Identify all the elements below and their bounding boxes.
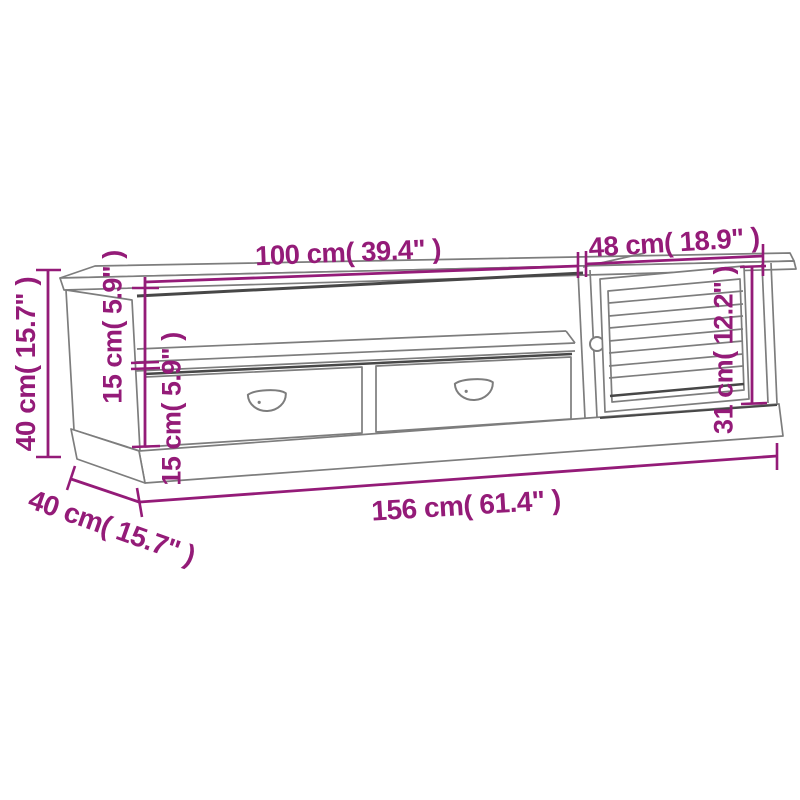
shelf-right-seam xyxy=(566,331,575,343)
dim-label-15cm-upper: 15 cm( 5.9" ) xyxy=(97,250,127,403)
diagram-canvas: 100 cm( 39.4" ) 48 cm( 18.9" ) 40 cm( 15… xyxy=(0,0,800,800)
right-post-outer-edge xyxy=(771,263,777,404)
dim-label-15cm-lower: 15 cm( 5.9" ) xyxy=(156,332,186,485)
dim-label-40cm-depth: 40 cm( 15.7" ) xyxy=(25,484,200,571)
dim-label-31cm: 31 cm( 12.2" ) xyxy=(708,266,738,434)
dim-label-40cm-height: 40 cm( 15.7" ) xyxy=(10,277,41,451)
right-post-front-edge xyxy=(762,264,768,403)
center-divider-front-edge xyxy=(578,271,585,418)
dim-label-156cm: 156 cm( 61.4" ) xyxy=(371,484,562,527)
tv-cabinet-dimension-diagram: 100 cm( 39.4" ) 48 cm( 18.9" ) 40 cm( 15… xyxy=(0,0,800,800)
dim-line-40cm-depth xyxy=(71,479,139,502)
dim-tick-40cm-depth xyxy=(67,466,75,490)
